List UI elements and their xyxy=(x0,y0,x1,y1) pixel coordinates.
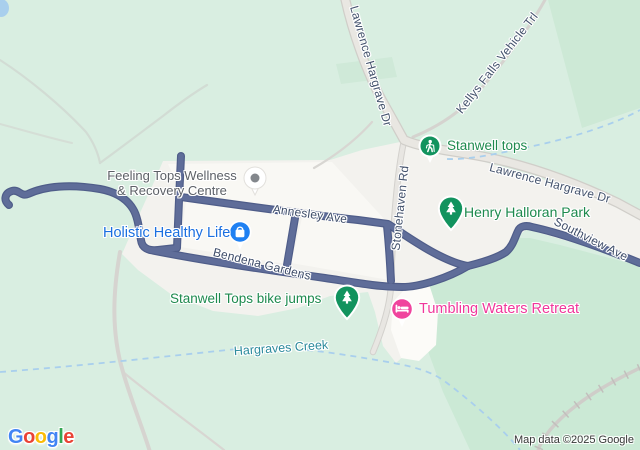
google-logo-letter: e xyxy=(63,426,74,448)
google-logo-letter: o xyxy=(35,426,47,448)
holistic-healthy-life-label[interactable]: Holistic Healthy Life xyxy=(103,225,230,241)
pond xyxy=(0,0,9,17)
bed-icon xyxy=(391,298,414,328)
google-logo-letter: G xyxy=(8,426,23,448)
map-canvas[interactable]: Lawrence Hargrave Dr Kellys Falls Vehicl… xyxy=(0,0,640,450)
tumbling-waters-pin[interactable] xyxy=(389,296,415,334)
google-logo-letter: g xyxy=(47,426,59,448)
map-tiles-layer xyxy=(0,0,640,450)
tumbling-waters-label[interactable]: Tumbling Waters Retreat xyxy=(419,301,579,317)
stanwell-tops-label[interactable]: Stanwell tops xyxy=(447,138,527,153)
bike-jumps-label[interactable]: Stanwell Tops bike jumps xyxy=(170,291,321,306)
shopping-bag-icon xyxy=(229,221,252,251)
feeling-tops-label-line2: & Recovery Centre xyxy=(92,183,252,198)
feeling-tops-label-line1: Feeling Tops Wellness xyxy=(92,168,252,183)
feeling-tops-label[interactable]: Feeling Tops Wellness & Recovery Centre xyxy=(92,168,252,198)
henry-halloran-park-label[interactable]: Henry Halloran Park xyxy=(464,204,590,220)
google-logo-letter: o xyxy=(23,426,35,448)
bike-jumps-pin[interactable] xyxy=(333,284,361,326)
tree-pin-icon xyxy=(335,286,359,320)
stanwell-tops-pin[interactable] xyxy=(417,133,443,170)
map-attribution: Map data ©2025 Google xyxy=(514,434,634,446)
tree-pin-icon xyxy=(439,197,463,231)
henry-halloran-park-pin[interactable] xyxy=(437,195,465,237)
holistic-healthy-life-pin[interactable] xyxy=(227,219,253,257)
google-logo[interactable]: Google xyxy=(8,426,74,449)
hiker-icon xyxy=(419,135,442,164)
